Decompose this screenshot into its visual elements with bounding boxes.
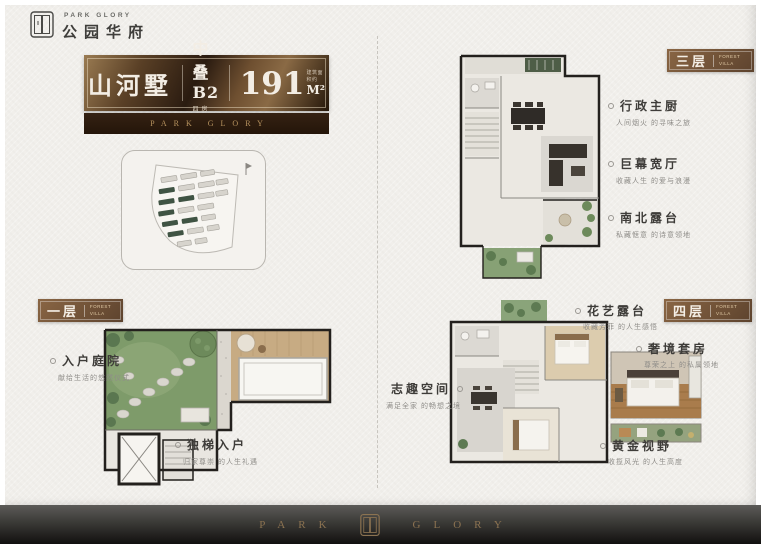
unit-area-number: 191 xyxy=(240,71,305,97)
bullet-circle-icon xyxy=(600,443,606,449)
annotation-entry-courtyard: 入户庭院 xyxy=(50,352,122,369)
annotation-desc: 归家尊崇 的人生礼遇 xyxy=(183,457,258,467)
annotation-golden-view: 黄金视野 xyxy=(600,437,672,454)
bullet-circle-icon xyxy=(608,161,614,167)
bullet-circle-icon xyxy=(608,103,614,109)
floor-label-third-en: FOREST VILLA xyxy=(719,54,748,66)
unit-type: 中叠B2 xyxy=(192,35,219,102)
floor-label-fourth-en: FOREST VILLA xyxy=(716,304,746,316)
brochure-page: PARK GLORY 公园华府 山河墅 中叠B2 四房三厅三卫 191 建筑面积… xyxy=(0,0,761,544)
floor-label-third: 三层 FOREST VILLA xyxy=(667,49,754,72)
page-fold-divider xyxy=(377,36,378,488)
brand-name-en: PARK GLORY xyxy=(64,12,132,19)
title-brand-strip: PARK GLORY xyxy=(84,113,329,134)
footer-brand-left: PARK xyxy=(246,519,339,531)
divider xyxy=(84,305,85,317)
annotation-desc: 收藏芳菲 的人生感悟 xyxy=(583,322,658,332)
floor-label-first-en: FOREST VILLA xyxy=(90,304,117,316)
unit-area-unit: M² xyxy=(306,83,325,97)
annotation-desc: 满足全家 的畅想之境 xyxy=(386,401,461,411)
unit-title-box: 山河墅 中叠B2 四房三厅三卫 191 建筑面积约 M² xyxy=(84,55,329,111)
bullet-circle-icon xyxy=(50,358,56,364)
footer-brand-bar: PARK GLORY xyxy=(0,505,761,544)
annotation-executive-kitchen: 行政主厨 xyxy=(608,97,680,114)
annotation-desc: 收藏人生 的爱与浪漫 xyxy=(616,176,691,186)
annotation-title: 入户庭院 xyxy=(62,352,122,369)
annotation-desc: 尊荣之上 的私属领地 xyxy=(644,360,719,370)
annotation-hobby-space: 志趣空间 xyxy=(391,380,463,397)
annotation-private-elevator: 独梯入户 xyxy=(175,436,247,453)
annotation-desc: 献给生活的悠然仪式 xyxy=(58,373,130,383)
floor-label-third-cn: 三层 xyxy=(673,51,708,70)
bullet-circle-icon xyxy=(608,215,614,221)
annotation-flower-terrace: 花艺露台 xyxy=(575,302,647,319)
unit-area-note: 建筑面积约 xyxy=(306,69,325,83)
annotation-wide-living-room: 巨幕宽厅 xyxy=(608,155,680,172)
annotation-title: 奢境套房 xyxy=(648,340,708,357)
bullet-circle-icon xyxy=(457,386,463,392)
annotation-desc: 收揽风光 的人生高度 xyxy=(608,457,683,467)
site-plan-map xyxy=(121,150,266,270)
annotation-title: 志趣空间 xyxy=(391,380,451,397)
annotation-title: 黄金视野 xyxy=(612,437,672,454)
brand-logo-icon xyxy=(30,11,54,38)
title-brand-strip-text: PARK GLORY xyxy=(143,119,270,128)
brand-name-cn: 公园华府 xyxy=(62,21,150,42)
annotation-title: 南北露台 xyxy=(620,209,680,226)
footer-brand-right: GLORY xyxy=(400,519,515,531)
annotation-title: 行政主厨 xyxy=(620,97,680,114)
bullet-circle-icon xyxy=(575,308,581,314)
annotation-title: 巨幕宽厅 xyxy=(620,155,680,172)
north-arrow-icon xyxy=(246,163,252,175)
annotation-desc: 私藏惬意 的诗意领地 xyxy=(616,230,691,240)
unit-name: 山河墅 xyxy=(88,66,172,101)
divider xyxy=(710,305,711,317)
bullet-circle-icon xyxy=(636,346,642,352)
bullet-circle-icon xyxy=(175,442,181,448)
floor-label-first-cn: 一层 xyxy=(44,301,79,320)
annotation-desc: 人间烟火 的寻味之旅 xyxy=(616,118,691,128)
footer-logo-icon xyxy=(360,513,380,537)
annotation-north-south-terrace: 南北露台 xyxy=(608,209,680,226)
annotation-title: 花艺露台 xyxy=(587,302,647,319)
third-floor-plan xyxy=(437,48,607,288)
floor-label-first: 一层 FOREST VILLA xyxy=(38,299,123,322)
annotation-title: 独梯入户 xyxy=(187,436,247,453)
divider xyxy=(713,55,714,67)
annotation-luxury-suite: 奢境套房 xyxy=(636,340,708,357)
